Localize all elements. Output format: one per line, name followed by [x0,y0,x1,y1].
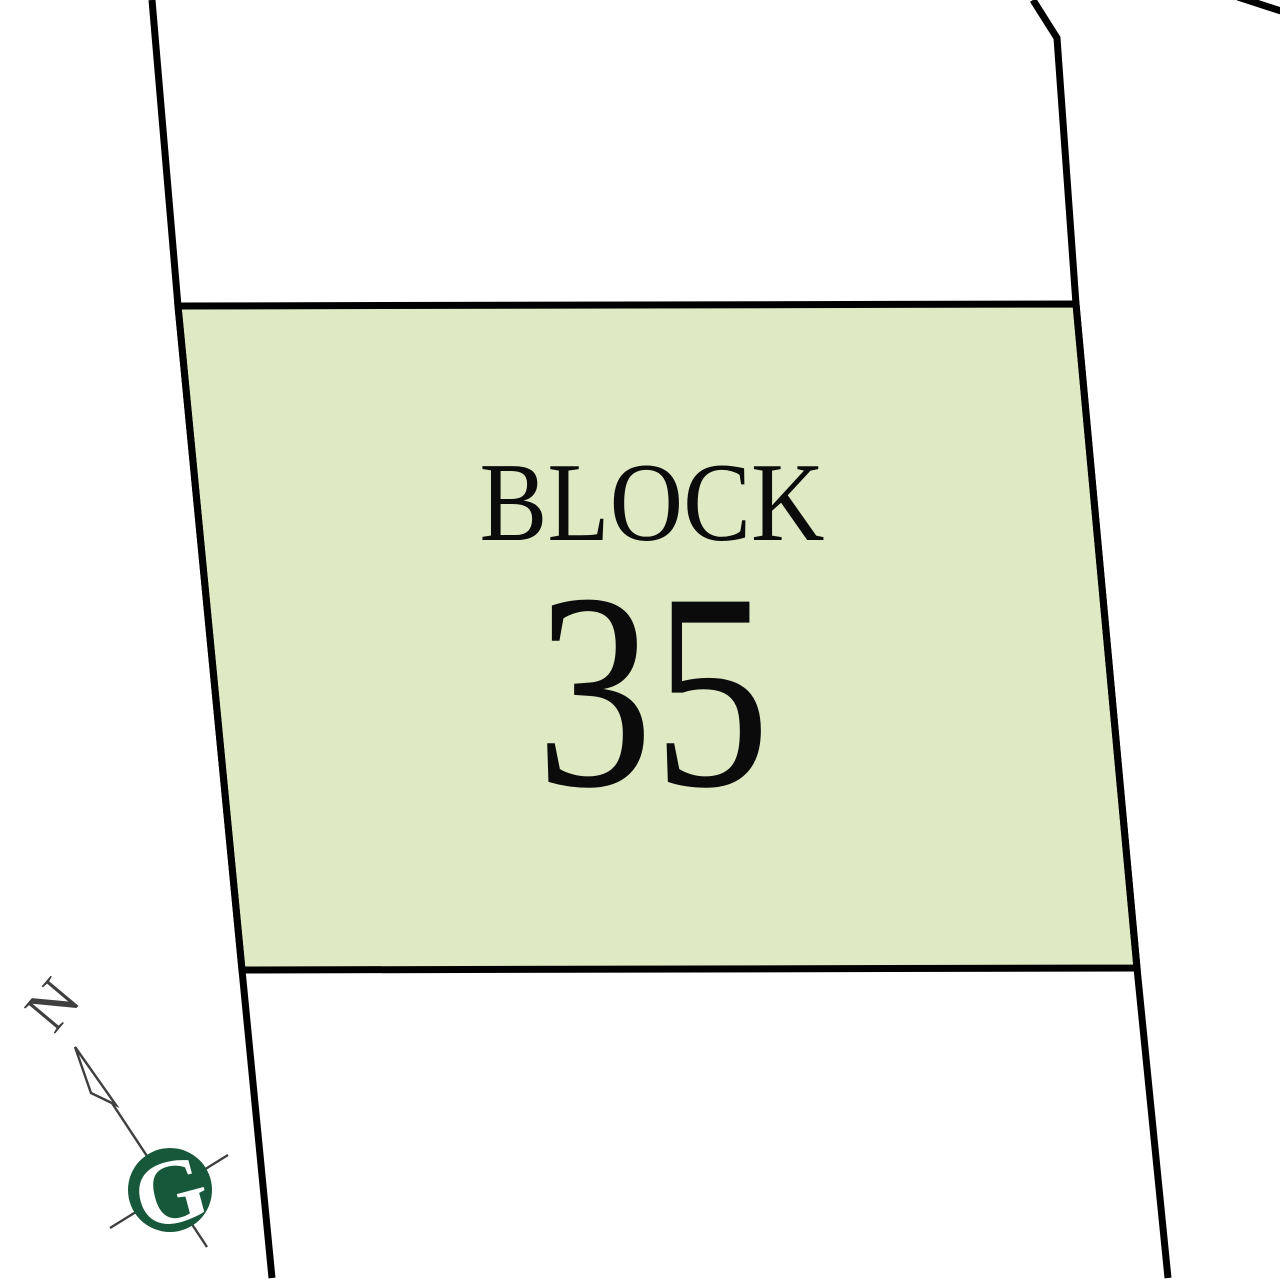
compass-needle-icon [75,1047,116,1105]
block-number: 35 [536,535,770,846]
compass-north-label: N [13,966,94,1044]
compass-rose: N G [13,966,228,1250]
boundary-line-top-right-corner [1238,0,1280,12]
plat-map: BLOCK 35 N G [0,0,1280,1281]
parcel-group: BLOCK 35 [178,304,1137,970]
company-logo-letter-glyph: G [123,1133,219,1250]
